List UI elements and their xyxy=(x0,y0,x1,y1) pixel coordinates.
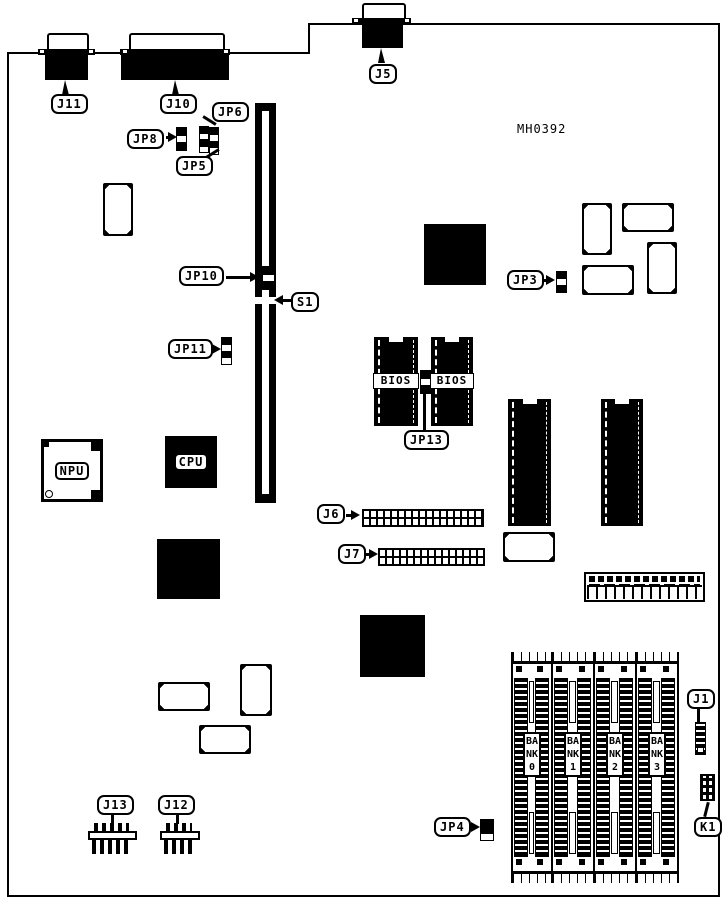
leader-j10 xyxy=(172,80,179,95)
connector-j11-screw-left xyxy=(40,50,44,53)
leader-j7-head xyxy=(369,549,378,559)
callout-j13: J13 xyxy=(97,795,134,815)
jumper-jp10 xyxy=(262,266,275,290)
chip-notch xyxy=(443,337,461,344)
callout-jp4: JP4 xyxy=(434,817,471,837)
leader-s1 xyxy=(282,299,291,302)
pin-header-j7 xyxy=(378,548,485,566)
bank-2-label: BANK2 xyxy=(606,732,624,777)
chip-notch xyxy=(387,337,405,344)
callout-jp3: JP3 xyxy=(507,270,544,290)
callout-jp5: JP5 xyxy=(176,156,213,176)
connector-j5-body xyxy=(362,22,403,48)
callout-j10: J10 xyxy=(160,94,197,114)
leader-jp13 xyxy=(423,393,426,431)
jumper-strip-j1 xyxy=(695,722,706,755)
board-edge-right xyxy=(718,23,720,897)
callout-jp8: JP8 xyxy=(127,129,164,149)
jumper-jp4 xyxy=(480,819,494,841)
smt-chip-outline xyxy=(240,664,272,716)
bank-1-label: BANK1 xyxy=(564,732,582,777)
connector-j10-screw-right xyxy=(224,50,228,53)
callout-k1: K1 xyxy=(694,817,722,837)
smt-chip-outline xyxy=(622,203,674,232)
chip-notch xyxy=(613,399,631,406)
connector-j10-body xyxy=(121,54,229,80)
chipset-qfp-2 xyxy=(157,539,220,599)
fan-header-j12 xyxy=(160,823,200,855)
jumper-jp11 xyxy=(221,337,232,365)
leader-jp10 xyxy=(226,276,252,279)
leader-jp8-head xyxy=(168,132,177,142)
simm-bank-0: BANK0 xyxy=(511,652,553,883)
leader-j6-head xyxy=(351,510,360,520)
cpu-label: CPU xyxy=(174,453,209,471)
board-edge-step xyxy=(308,23,310,54)
relay-k1 xyxy=(700,774,715,801)
leader-jp10-head xyxy=(250,272,259,282)
leader-jp3-head xyxy=(546,275,555,285)
smt-chip-outline xyxy=(582,203,612,255)
connector-j5-screw-left xyxy=(354,19,358,22)
memory-banks: BANK0 BANK1 BANK2 BANK3 xyxy=(511,652,679,883)
callout-jp10: JP10 xyxy=(179,266,224,286)
jumper-jp8 xyxy=(176,127,187,151)
part-number-text: MH0392 xyxy=(517,122,566,136)
bios-label-right: BIOS xyxy=(430,373,474,389)
leader-jp11-head xyxy=(212,344,221,354)
bios-chip-right: BIOS xyxy=(431,337,473,426)
callout-j1: J1 xyxy=(687,689,715,709)
leader-s1-head xyxy=(274,295,283,305)
leader-j5 xyxy=(378,48,385,63)
callout-j6: J6 xyxy=(317,504,345,524)
callout-j7: J7 xyxy=(338,544,366,564)
smt-chip-outline xyxy=(503,532,555,562)
callout-j11: J11 xyxy=(51,94,88,114)
memory-chip-left xyxy=(508,399,551,526)
power-connector xyxy=(584,572,705,602)
board-edge-left xyxy=(7,52,9,897)
simm-bank-2: BANK2 xyxy=(595,652,637,883)
leader-k1 xyxy=(703,802,710,817)
jumper-jp6 xyxy=(199,126,209,153)
board-edge-bottom xyxy=(7,895,720,897)
callout-j12: J12 xyxy=(158,795,195,815)
chipset-qfp-3 xyxy=(360,615,425,677)
npu-socket: NPU xyxy=(41,439,103,502)
bank-3-label: BANK3 xyxy=(648,732,666,777)
jumper-jp3 xyxy=(556,271,567,293)
npu-label: NPU xyxy=(55,462,90,480)
leader-j1 xyxy=(697,709,700,722)
bios-chip-left: BIOS xyxy=(374,337,418,426)
smt-chip-outline xyxy=(582,265,634,295)
leader-jp4-head xyxy=(471,822,480,832)
memory-chip-right xyxy=(601,399,643,526)
connector-j5-screw-right xyxy=(405,19,409,22)
callout-j5: J5 xyxy=(369,64,397,84)
chipset-qfp-1 xyxy=(424,224,486,285)
pin-header-j6 xyxy=(362,509,484,527)
simm-bank-3: BANK3 xyxy=(637,652,679,883)
connector-j10-screw-left xyxy=(123,50,127,53)
cpu-chip: CPU xyxy=(165,436,217,488)
bios-label-left: BIOS xyxy=(373,373,419,389)
smt-chip-outline xyxy=(103,183,133,236)
power-connector-sockets xyxy=(587,585,702,599)
connector-j11-screw-right xyxy=(89,50,93,53)
callout-s1: S1 xyxy=(291,292,319,312)
smt-chip-outline xyxy=(158,682,210,711)
simm-bank-1: BANK1 xyxy=(553,652,595,883)
bank-0-label: BANK0 xyxy=(523,732,541,777)
chip-notch xyxy=(521,399,539,406)
smt-chip-outline xyxy=(647,242,677,294)
smt-chip-outline xyxy=(199,725,251,754)
motherboard-diagram: J11 J10 J5 MH0392 JP8 JP6 JP5 JP10 S1 JP… xyxy=(0,0,727,903)
connector-j11-body xyxy=(45,54,88,80)
fan-header-j13 xyxy=(88,823,137,855)
power-connector-pins xyxy=(589,576,700,582)
leader-j11 xyxy=(62,80,69,95)
callout-jp13: JP13 xyxy=(404,430,449,450)
jumper-jp13 xyxy=(420,370,431,394)
callout-jp6: JP6 xyxy=(212,102,249,122)
callout-jp11: JP11 xyxy=(168,339,213,359)
